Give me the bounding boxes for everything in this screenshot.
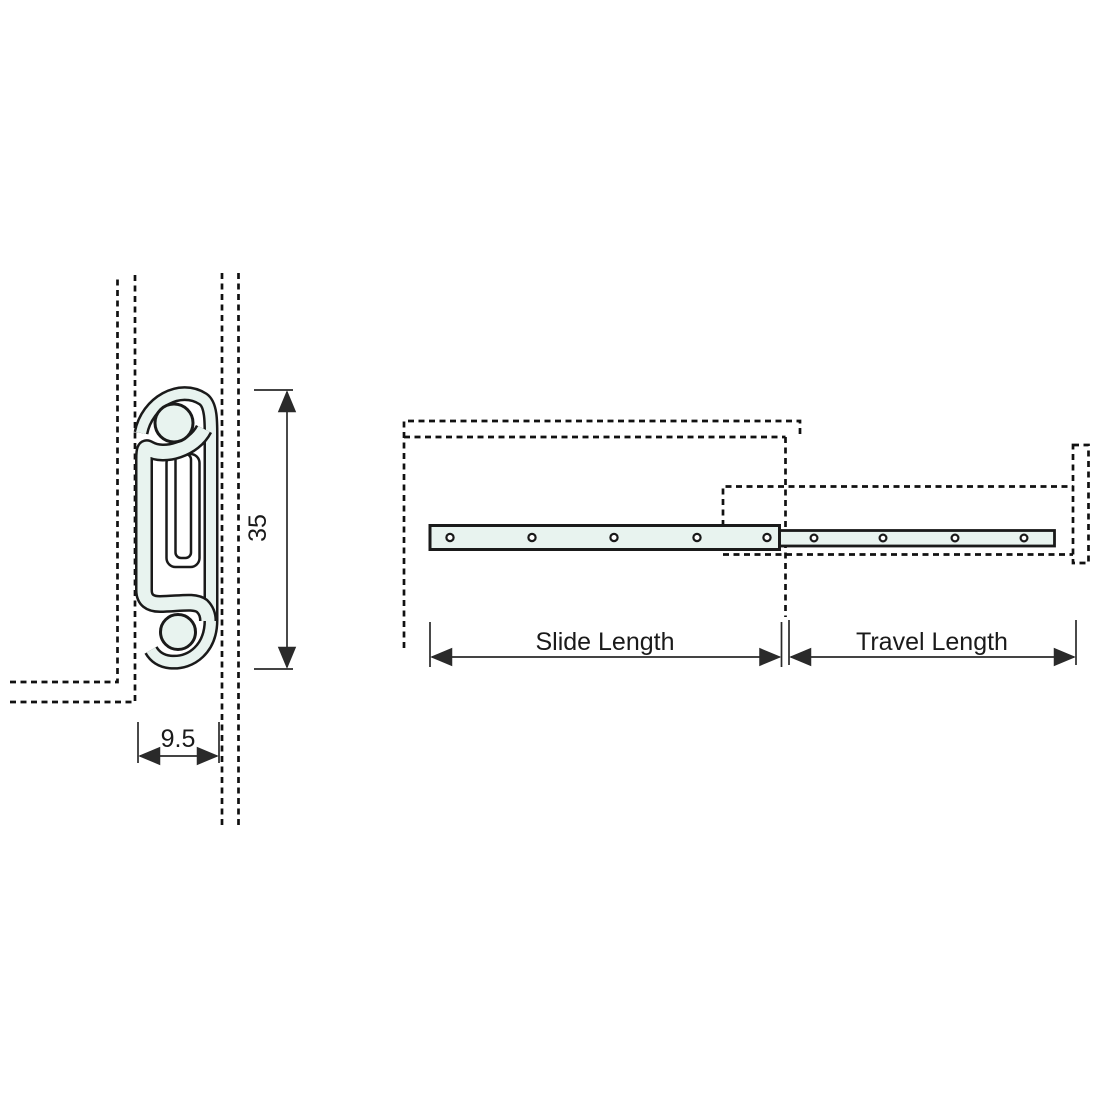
dimension-width-9-5: 9.5 (138, 722, 219, 763)
diagram-svg: 35 9.5 Slide Length (0, 0, 1100, 1100)
mounting-hole (693, 534, 700, 541)
drawer-slide-diagram: 35 9.5 Slide Length (0, 0, 1100, 1100)
mounting-hole (528, 534, 535, 541)
height-dimension-label: 35 (244, 514, 272, 542)
mounting-hole (763, 534, 770, 541)
mounting-hole (610, 534, 617, 541)
mounting-hole (952, 535, 959, 542)
inner-rail-detail (167, 454, 200, 567)
ball-bearing-top (155, 404, 193, 442)
ball-bearing-bottom (161, 615, 196, 650)
mounting-hole (446, 534, 453, 541)
dimension-height-35: 35 (244, 390, 293, 669)
slide-member-bar (430, 526, 780, 550)
slide-length-label: Slide Length (535, 628, 674, 656)
dimension-slide-length: Slide Length (430, 622, 782, 667)
mounting-hole (1021, 535, 1028, 542)
mounting-hole (880, 535, 887, 542)
mounting-hole (811, 535, 818, 542)
drawer-front-dashed-bracket (1073, 445, 1089, 563)
width-dimension-label: 9.5 (161, 725, 196, 753)
cabinet-panel-dashed-outline-outer (10, 276, 118, 682)
travel-length-label: Travel Length (856, 628, 1008, 656)
dimension-travel-length: Travel Length (789, 620, 1076, 665)
side-view: Slide Length Travel Length (404, 421, 1089, 667)
cross-section-view: 35 9.5 (10, 273, 293, 825)
travel-member-bar (780, 531, 1055, 547)
drawer-body-dashed-top (723, 487, 1073, 527)
